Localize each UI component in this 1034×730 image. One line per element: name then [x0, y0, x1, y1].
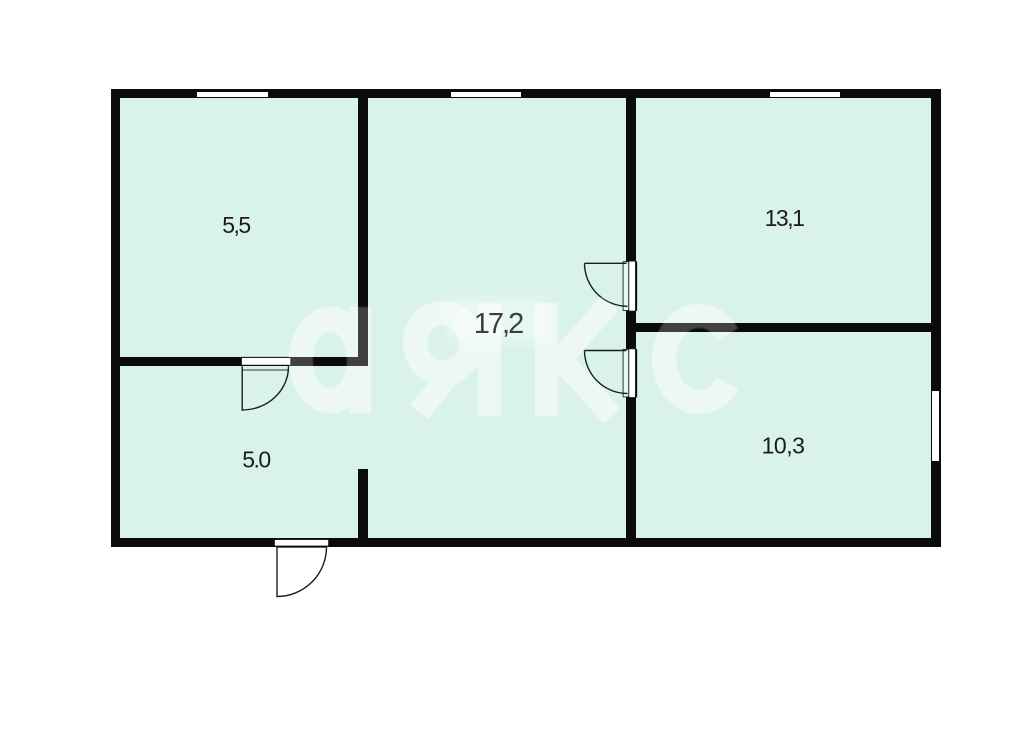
svg-text:5.0: 5.0 — [242, 447, 270, 473]
svg-text:5,5: 5,5 — [222, 212, 250, 238]
svg-text:17,2: 17,2 — [474, 308, 523, 340]
svg-text:13,1: 13,1 — [765, 205, 804, 231]
svg-text:10,3: 10,3 — [762, 433, 805, 459]
